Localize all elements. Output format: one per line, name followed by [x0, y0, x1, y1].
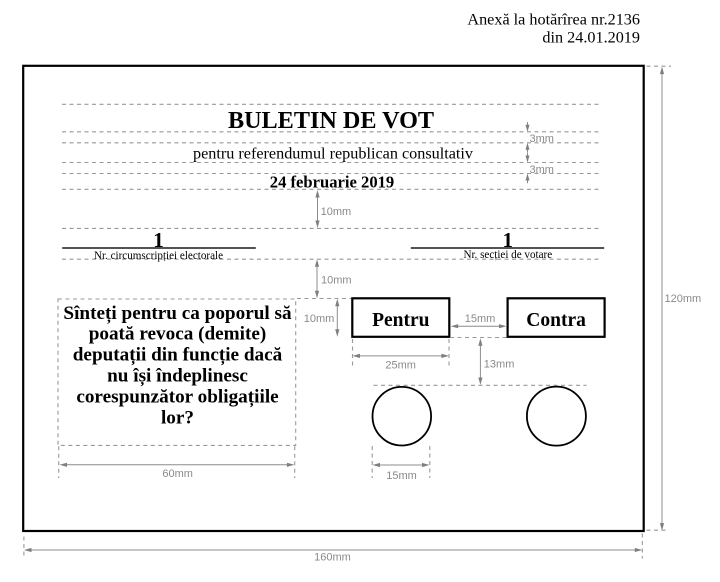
svg-text:10mm: 10mm — [321, 206, 352, 218]
svg-text:Nr. circumscripției electorale: Nr. circumscripției electorale — [94, 250, 223, 262]
svg-text:25mm: 25mm — [385, 360, 416, 372]
svg-text:10mm: 10mm — [321, 274, 352, 286]
svg-text:24 februarie 2019: 24 februarie 2019 — [270, 173, 394, 192]
svg-text:Nr. secției de votare: Nr. secției de votare — [463, 249, 552, 261]
svg-text:pentru referendumul republican: pentru referendumul republican consultat… — [193, 144, 474, 162]
svg-text:poată revoca (demite): poată revoca (demite) — [89, 324, 267, 345]
svg-text:lor?: lor? — [161, 407, 194, 428]
svg-text:3mm: 3mm — [530, 164, 554, 176]
svg-text:Contra: Contra — [526, 310, 586, 331]
svg-text:3mm: 3mm — [530, 133, 554, 145]
svg-text:15mm: 15mm — [465, 313, 496, 325]
svg-text:BULETIN DE VOT: BULETIN DE VOT — [228, 107, 434, 134]
svg-text:Sînteți pentru ca poporul să: Sînteți pentru ca poporul să — [63, 303, 292, 324]
svg-text:Pentru: Pentru — [372, 310, 430, 331]
svg-text:din 24.01.2019: din 24.01.2019 — [542, 28, 640, 46]
svg-text:deputații din funcție dacă: deputații din funcție dacă — [73, 345, 283, 366]
svg-text:15mm: 15mm — [386, 470, 417, 482]
svg-text:Anexă la hotărîrea nr.2136: Anexă la hotărîrea nr.2136 — [467, 11, 640, 29]
svg-text:120mm: 120mm — [665, 293, 702, 305]
svg-text:60mm: 60mm — [162, 468, 193, 480]
svg-text:10mm: 10mm — [304, 313, 335, 325]
svg-text:13mm: 13mm — [484, 358, 515, 370]
svg-text:corespunzător obligațiile: corespunzător obligațiile — [76, 386, 279, 407]
svg-text:nu își îndeplinesc: nu își îndeplinesc — [107, 366, 248, 387]
svg-text:160mm: 160mm — [314, 551, 351, 563]
